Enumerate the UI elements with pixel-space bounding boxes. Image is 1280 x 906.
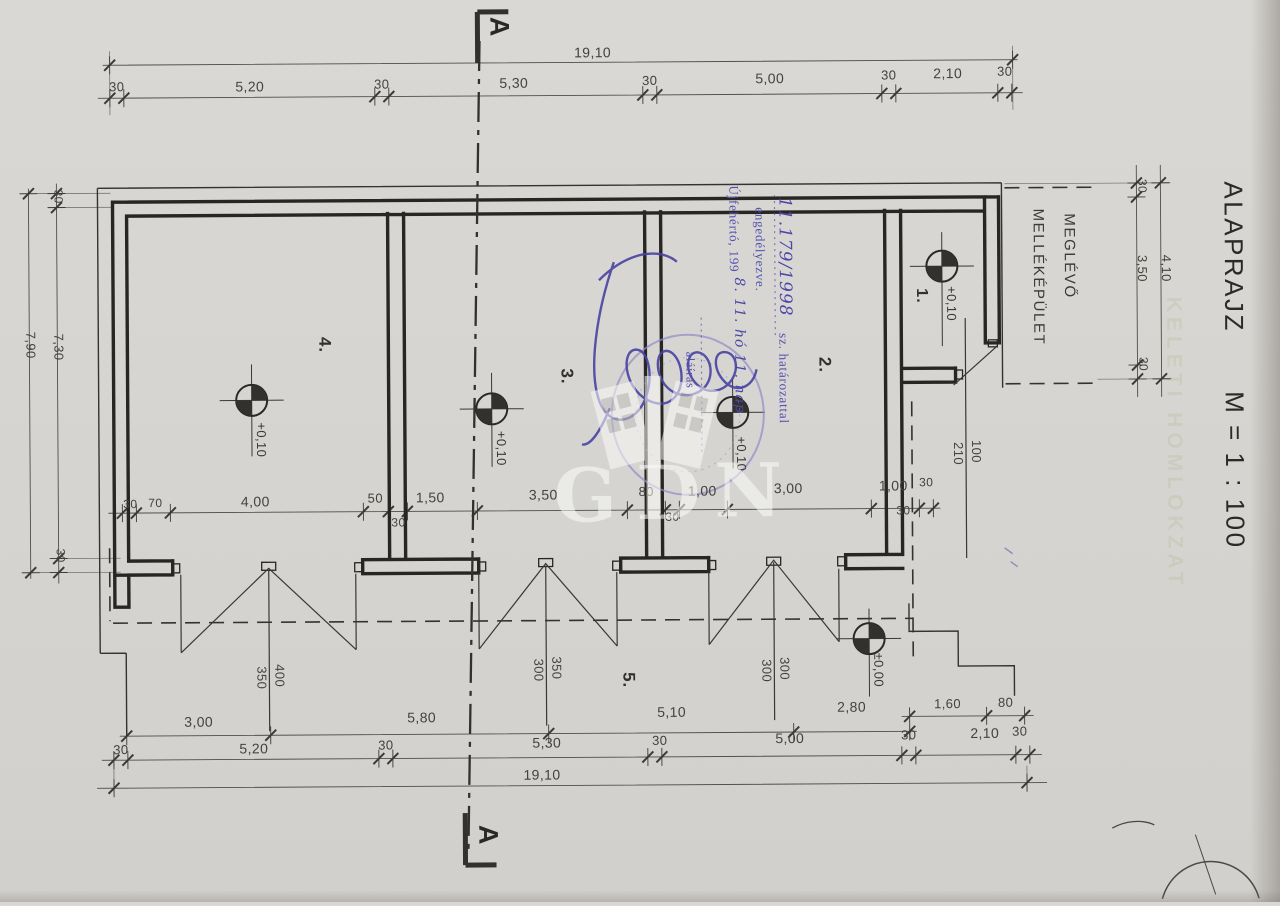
opening-size-den: 300 bbox=[760, 659, 774, 682]
scan-area: 19,10305,20305,30305,00302,103030704,005… bbox=[0, 0, 1280, 906]
stamp-hw-date: 8. 11. hó 11. nap bbox=[731, 277, 747, 414]
dim-axis-1: 3,00 bbox=[184, 715, 213, 730]
dim-int-opening-6: 1,00 bbox=[879, 478, 908, 493]
dim-int-wall-sub: 30 bbox=[896, 504, 910, 517]
dim-axis-2: 5,80 bbox=[407, 710, 436, 725]
dim-bot-wall: 30 bbox=[113, 743, 128, 757]
page-edge-shadow-bottom bbox=[0, 890, 1280, 902]
section-letter-bottom: A bbox=[474, 825, 502, 845]
dim-int-wall: 30 bbox=[919, 476, 933, 489]
dim-int-pier: 50 bbox=[368, 492, 383, 506]
stamp-typed-1: sz. határozattal bbox=[777, 333, 791, 424]
opening-size-den: 300 bbox=[532, 659, 546, 682]
dim-bot-wall: 30 bbox=[901, 728, 916, 742]
opening-size-num: 300 bbox=[778, 657, 792, 680]
dim-int-wall-sub: 30 bbox=[391, 516, 405, 529]
dim-left-wall: 30 bbox=[52, 190, 65, 204]
opening-size-den: 350 bbox=[255, 666, 269, 689]
dim-axis-4: 2,80 bbox=[837, 700, 866, 715]
dim-bot-2: 5,30 bbox=[532, 735, 561, 750]
scanned-floor-plan-page: { "summary": { "drawing_title": "ALAPRAJ… bbox=[0, 0, 1280, 902]
door-size-den: 210 bbox=[951, 442, 965, 465]
dim-top-wall: 30 bbox=[374, 78, 389, 92]
bleed-through-text: KELETI HOMLOKZAT bbox=[1162, 297, 1186, 590]
dim-bot-wall: 30 bbox=[652, 734, 667, 748]
level-value-zero: ±0,00 bbox=[872, 653, 886, 688]
dim-int-opening-2: 1,50 bbox=[416, 490, 445, 505]
level-value: +0,10 bbox=[944, 286, 958, 321]
dim-corner-2: 80 bbox=[998, 696, 1013, 710]
dim-bot-1: 5,20 bbox=[239, 741, 268, 756]
level-value: +0,10 bbox=[254, 422, 268, 457]
watermark-letter-g: G bbox=[553, 458, 617, 536]
stamp-typed-2: engedélyezve. bbox=[753, 207, 767, 291]
dim-int-wall: 30 bbox=[123, 498, 137, 511]
room-label-2: 2. bbox=[816, 357, 834, 373]
dim-left-overall: 7,90 bbox=[24, 332, 38, 359]
dim-axis-3: 5,10 bbox=[657, 705, 686, 720]
dim-bot-3: 5,00 bbox=[775, 731, 804, 746]
room-label-5: 5. bbox=[620, 672, 638, 688]
stamp-signature-caption: aláírás bbox=[684, 352, 697, 389]
room-label-1: 1. bbox=[912, 288, 929, 303]
room-label-3: 3. bbox=[558, 368, 576, 384]
dim-top-wall: 30 bbox=[642, 74, 657, 88]
dim-right-wall: 30 bbox=[1136, 179, 1149, 193]
dim-int-pier: 70 bbox=[148, 497, 162, 510]
section-letter-top: A bbox=[485, 17, 513, 37]
text-labels-layer: 19,10305,20305,30305,00302,103030704,005… bbox=[0, 0, 1280, 906]
dim-left-wall: 30 bbox=[54, 549, 67, 563]
level-value: +0,10 bbox=[494, 431, 508, 466]
dim-right-overall: 4,10 bbox=[1159, 255, 1173, 282]
opening-size-num: 400 bbox=[273, 664, 287, 687]
dim-top-2: 5,30 bbox=[499, 76, 528, 91]
page-edge-shadow-right bbox=[1250, 0, 1280, 902]
dim-top-wall: 30 bbox=[997, 65, 1012, 79]
watermark-letter-d: D bbox=[636, 456, 701, 534]
stamp-typed-3: Újfehértó, 199 bbox=[727, 185, 741, 272]
opening-size-num: 350 bbox=[550, 656, 564, 679]
note-existing-2: MELLÉKÉPÜLET bbox=[1030, 209, 1047, 346]
dim-top-1: 5,20 bbox=[235, 79, 264, 94]
dim-bot-wall: 30 bbox=[1012, 725, 1027, 739]
dim-top-wall: 30 bbox=[109, 80, 124, 94]
dim-bot-4: 2,10 bbox=[970, 726, 999, 741]
dim-right-wall: 30 bbox=[1137, 357, 1150, 371]
dim-bot-overall: 19,10 bbox=[523, 767, 560, 782]
dim-bot-wall: 30 bbox=[378, 739, 393, 753]
dim-top-4: 2,10 bbox=[933, 66, 962, 81]
dim-corner-1: 1,60 bbox=[934, 697, 961, 711]
door-size-num: 100 bbox=[969, 440, 983, 463]
dim-top-overall: 19,10 bbox=[574, 45, 611, 60]
dim-right-inner: 3,50 bbox=[1135, 255, 1149, 282]
dim-top-3: 5,00 bbox=[755, 71, 784, 86]
stamp-case-number: 11.179/1998 bbox=[775, 197, 794, 317]
watermark-letter-n: N bbox=[714, 453, 782, 531]
drawing-title: ALAPRAJZ M = 1 : 100 bbox=[1219, 181, 1249, 549]
dim-int-opening-1: 4,00 bbox=[241, 494, 270, 509]
dim-left-inner: 7,30 bbox=[52, 334, 66, 361]
room-label-4: 4. bbox=[315, 337, 333, 353]
dim-top-wall: 30 bbox=[881, 68, 896, 82]
note-existing-1: MEGLÉVŐ bbox=[1061, 213, 1077, 298]
